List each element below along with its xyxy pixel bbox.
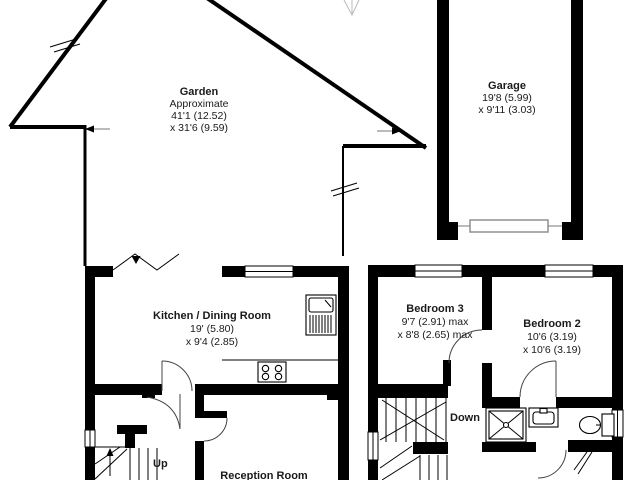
kitchen-window bbox=[245, 266, 293, 277]
bedroom2-window bbox=[545, 265, 593, 277]
bedroom2-label: Bedroom 2 10'6 (3.19) x 10'6 (3.19) bbox=[523, 318, 581, 356]
bedroom3-name: Bedroom 3 bbox=[406, 303, 463, 315]
garden-note: Approximate bbox=[170, 98, 229, 110]
stair-window bbox=[368, 432, 378, 460]
first-floor-walls bbox=[368, 265, 623, 480]
floorplan-drawing: Garden Approximate 41'1 (12.52) x 31'6 (… bbox=[0, 0, 640, 480]
entrance-door-arc bbox=[147, 394, 180, 429]
kitchen-sink-icon bbox=[306, 295, 336, 335]
garage-dim1: 19'8 (5.99) bbox=[482, 92, 532, 104]
garage-walls bbox=[437, 0, 583, 240]
shower-tray-icon bbox=[486, 408, 526, 442]
stairs-up-label: Up bbox=[153, 458, 168, 470]
north-arrow-icon bbox=[344, 0, 359, 15]
garden-dim2: x 31'6 (9.59) bbox=[170, 122, 228, 134]
hob-icon bbox=[258, 362, 286, 382]
garden-area: Garden Approximate 41'1 (12.52) x 31'6 (… bbox=[10, 0, 426, 266]
staircase-down bbox=[380, 398, 447, 480]
garage-area: Garage 19'8 (5.99) x 9'11 (3.03) bbox=[437, 0, 583, 240]
kitchen-dim1: 19' (5.80) bbox=[190, 323, 234, 335]
bedroom3-label: Bedroom 3 9'7 (2.91) max x 8'8 (2.65) ma… bbox=[398, 303, 474, 341]
bedroom3-dim2: x 8'8 (2.65) max bbox=[398, 329, 474, 341]
garden-label: Garden Approximate 41'1 (12.52) x 31'6 (… bbox=[170, 86, 229, 134]
garage-dim2: x 9'11 (3.03) bbox=[478, 104, 535, 116]
side-window bbox=[85, 430, 95, 447]
staircase-up bbox=[95, 447, 157, 480]
kitchen-label: Kitchen / Dining Room 19' (5.80) x 9'4 (… bbox=[153, 310, 271, 348]
first-floor: Down Bedroom 3 9'7 (2.91) max x 8'8 (2.6… bbox=[368, 265, 623, 480]
bedroom2-dim2: x 10'6 (3.19) bbox=[523, 344, 581, 356]
bathroom-door-arc bbox=[538, 450, 566, 478]
toilet-icon bbox=[580, 414, 615, 436]
floorplan-page: Garden Approximate 41'1 (12.52) x 31'6 (… bbox=[0, 0, 640, 480]
ground-floor: Up Kitchen / Dining Room 19' (5.80) x 9'… bbox=[85, 254, 349, 480]
garden-name: Garden bbox=[180, 86, 219, 98]
reception-name: Reception Room bbox=[220, 470, 308, 480]
bedroom2-door-arc bbox=[520, 361, 556, 397]
bedroom2-dim1: 10'6 (3.19) bbox=[527, 331, 577, 343]
bedroom3-window bbox=[415, 265, 462, 277]
kitchen-door-arc bbox=[162, 361, 192, 391]
garage-door bbox=[458, 220, 562, 232]
gate-arrow-left-icon bbox=[85, 126, 110, 133]
kitchen-name: Kitchen / Dining Room bbox=[153, 310, 271, 322]
bedroom3-dim1: 9'7 (2.91) max bbox=[402, 316, 470, 328]
reception-door-arc bbox=[197, 411, 227, 441]
stairs-down-label: Down bbox=[450, 412, 480, 424]
bedroom2-name: Bedroom 2 bbox=[523, 318, 580, 330]
bathroom-sink-icon bbox=[529, 408, 558, 427]
bottom-room-door-leaf bbox=[574, 452, 592, 474]
garage-name: Garage bbox=[488, 80, 526, 92]
garden-dim1: 41'1 (12.52) bbox=[171, 110, 227, 122]
bifold-door-icon bbox=[113, 254, 179, 270]
garage-label: Garage 19'8 (5.99) x 9'11 (3.03) bbox=[478, 80, 535, 116]
kitchen-dim2: x 9'4 (2.85) bbox=[186, 336, 238, 348]
